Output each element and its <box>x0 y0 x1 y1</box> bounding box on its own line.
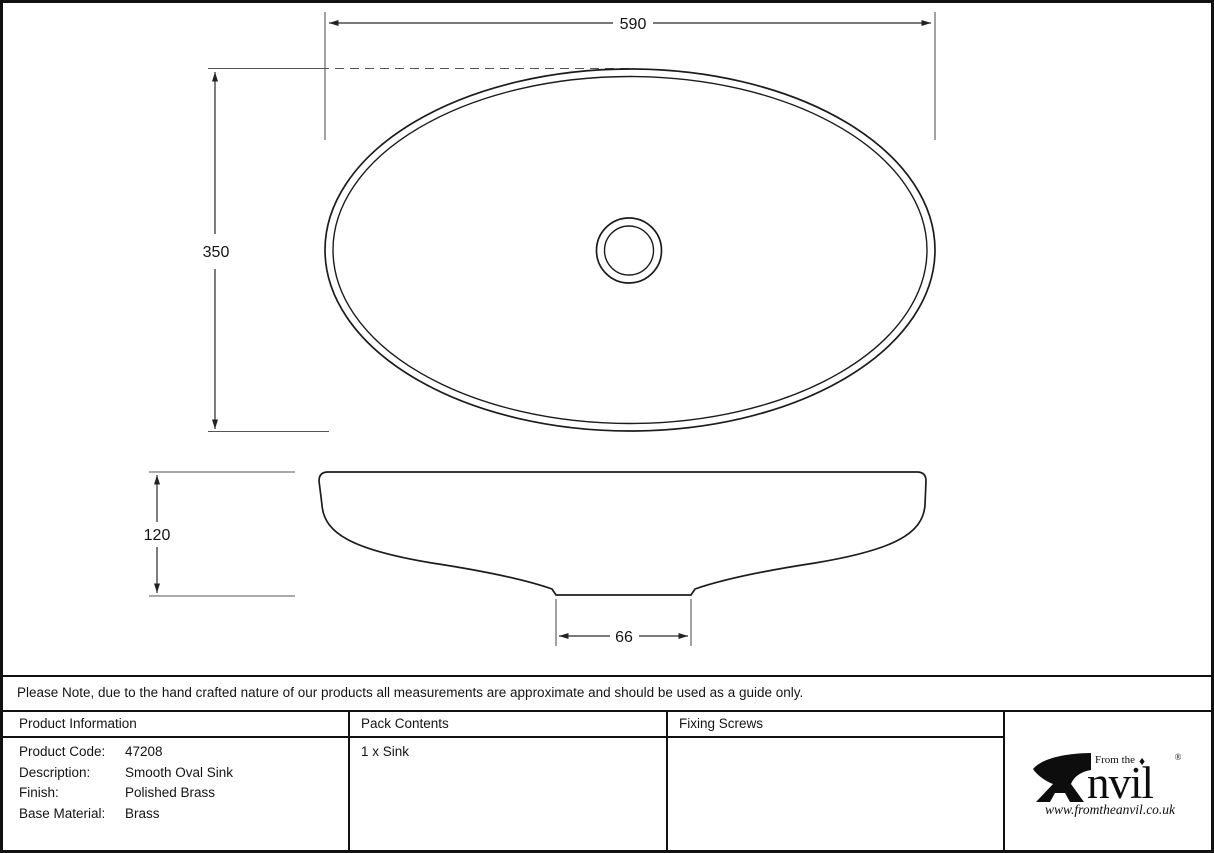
disclaimer-note: Please Note, due to the hand crafted nat… <box>17 676 803 710</box>
technical-drawing: 590 350 120 <box>3 3 1214 675</box>
product-code-value: 47208 <box>125 742 163 763</box>
logo-wordmark: nvil <box>1087 758 1154 808</box>
drain-outer-circle <box>597 218 662 283</box>
description-value: Smooth Oval Sink <box>125 763 233 784</box>
base-material-value: Brass <box>125 804 160 825</box>
table-row: Finish: Polished Brass <box>19 783 339 804</box>
dimension-label-120: 120 <box>144 527 171 544</box>
pack-contents-value: 1 x Sink <box>361 742 409 763</box>
product-code-label: Product Code: <box>19 742 125 763</box>
sink-side-view <box>319 472 926 595</box>
finish-label: Finish: <box>19 783 125 804</box>
sink-inner-rim <box>333 77 927 424</box>
from-the-anvil-logo: From the ♦ nvil ® www.fromtheanvil.co.uk <box>1031 746 1189 820</box>
side-profile-outline <box>319 472 926 595</box>
dimension-label-350: 350 <box>203 244 230 261</box>
dimension-top-height: 350 <box>203 69 630 432</box>
table-row: Product Code: 47208 <box>19 742 339 763</box>
sink-outer-rim <box>325 69 935 431</box>
column-header-fixing-screws: Fixing Screws <box>679 712 763 736</box>
drain-inner-circle <box>605 226 654 275</box>
table-row: Description: Smooth Oval Sink <box>19 763 339 784</box>
dimension-label-590: 590 <box>620 16 647 33</box>
dimension-base-width: 66 <box>556 599 691 646</box>
registered-trademark-icon: ® <box>1174 752 1181 762</box>
base-material-label: Base Material: <box>19 804 125 825</box>
anvil-icon <box>1033 753 1091 802</box>
table-divider-1 <box>348 710 350 853</box>
dimension-side-height: 120 <box>144 472 295 596</box>
column-header-product-information: Product Information <box>19 712 137 736</box>
description-label: Description: <box>19 763 125 784</box>
logo-url: www.fromtheanvil.co.uk <box>1044 802 1175 817</box>
dimension-label-66: 66 <box>615 629 633 646</box>
table-row: Base Material: Brass <box>19 804 339 825</box>
table-divider-2 <box>666 710 668 853</box>
sink-top-view <box>325 69 935 431</box>
column-header-pack-contents: Pack Contents <box>361 712 449 736</box>
finish-value: Polished Brass <box>125 783 215 804</box>
table-border-header-bottom <box>3 736 1005 738</box>
brand-logo: From the ♦ nvil ® www.fromtheanvil.co.uk <box>1005 712 1214 853</box>
product-information-list: Product Code: 47208 Description: Smooth … <box>19 742 339 824</box>
spec-sheet: 590 350 120 <box>0 0 1214 853</box>
